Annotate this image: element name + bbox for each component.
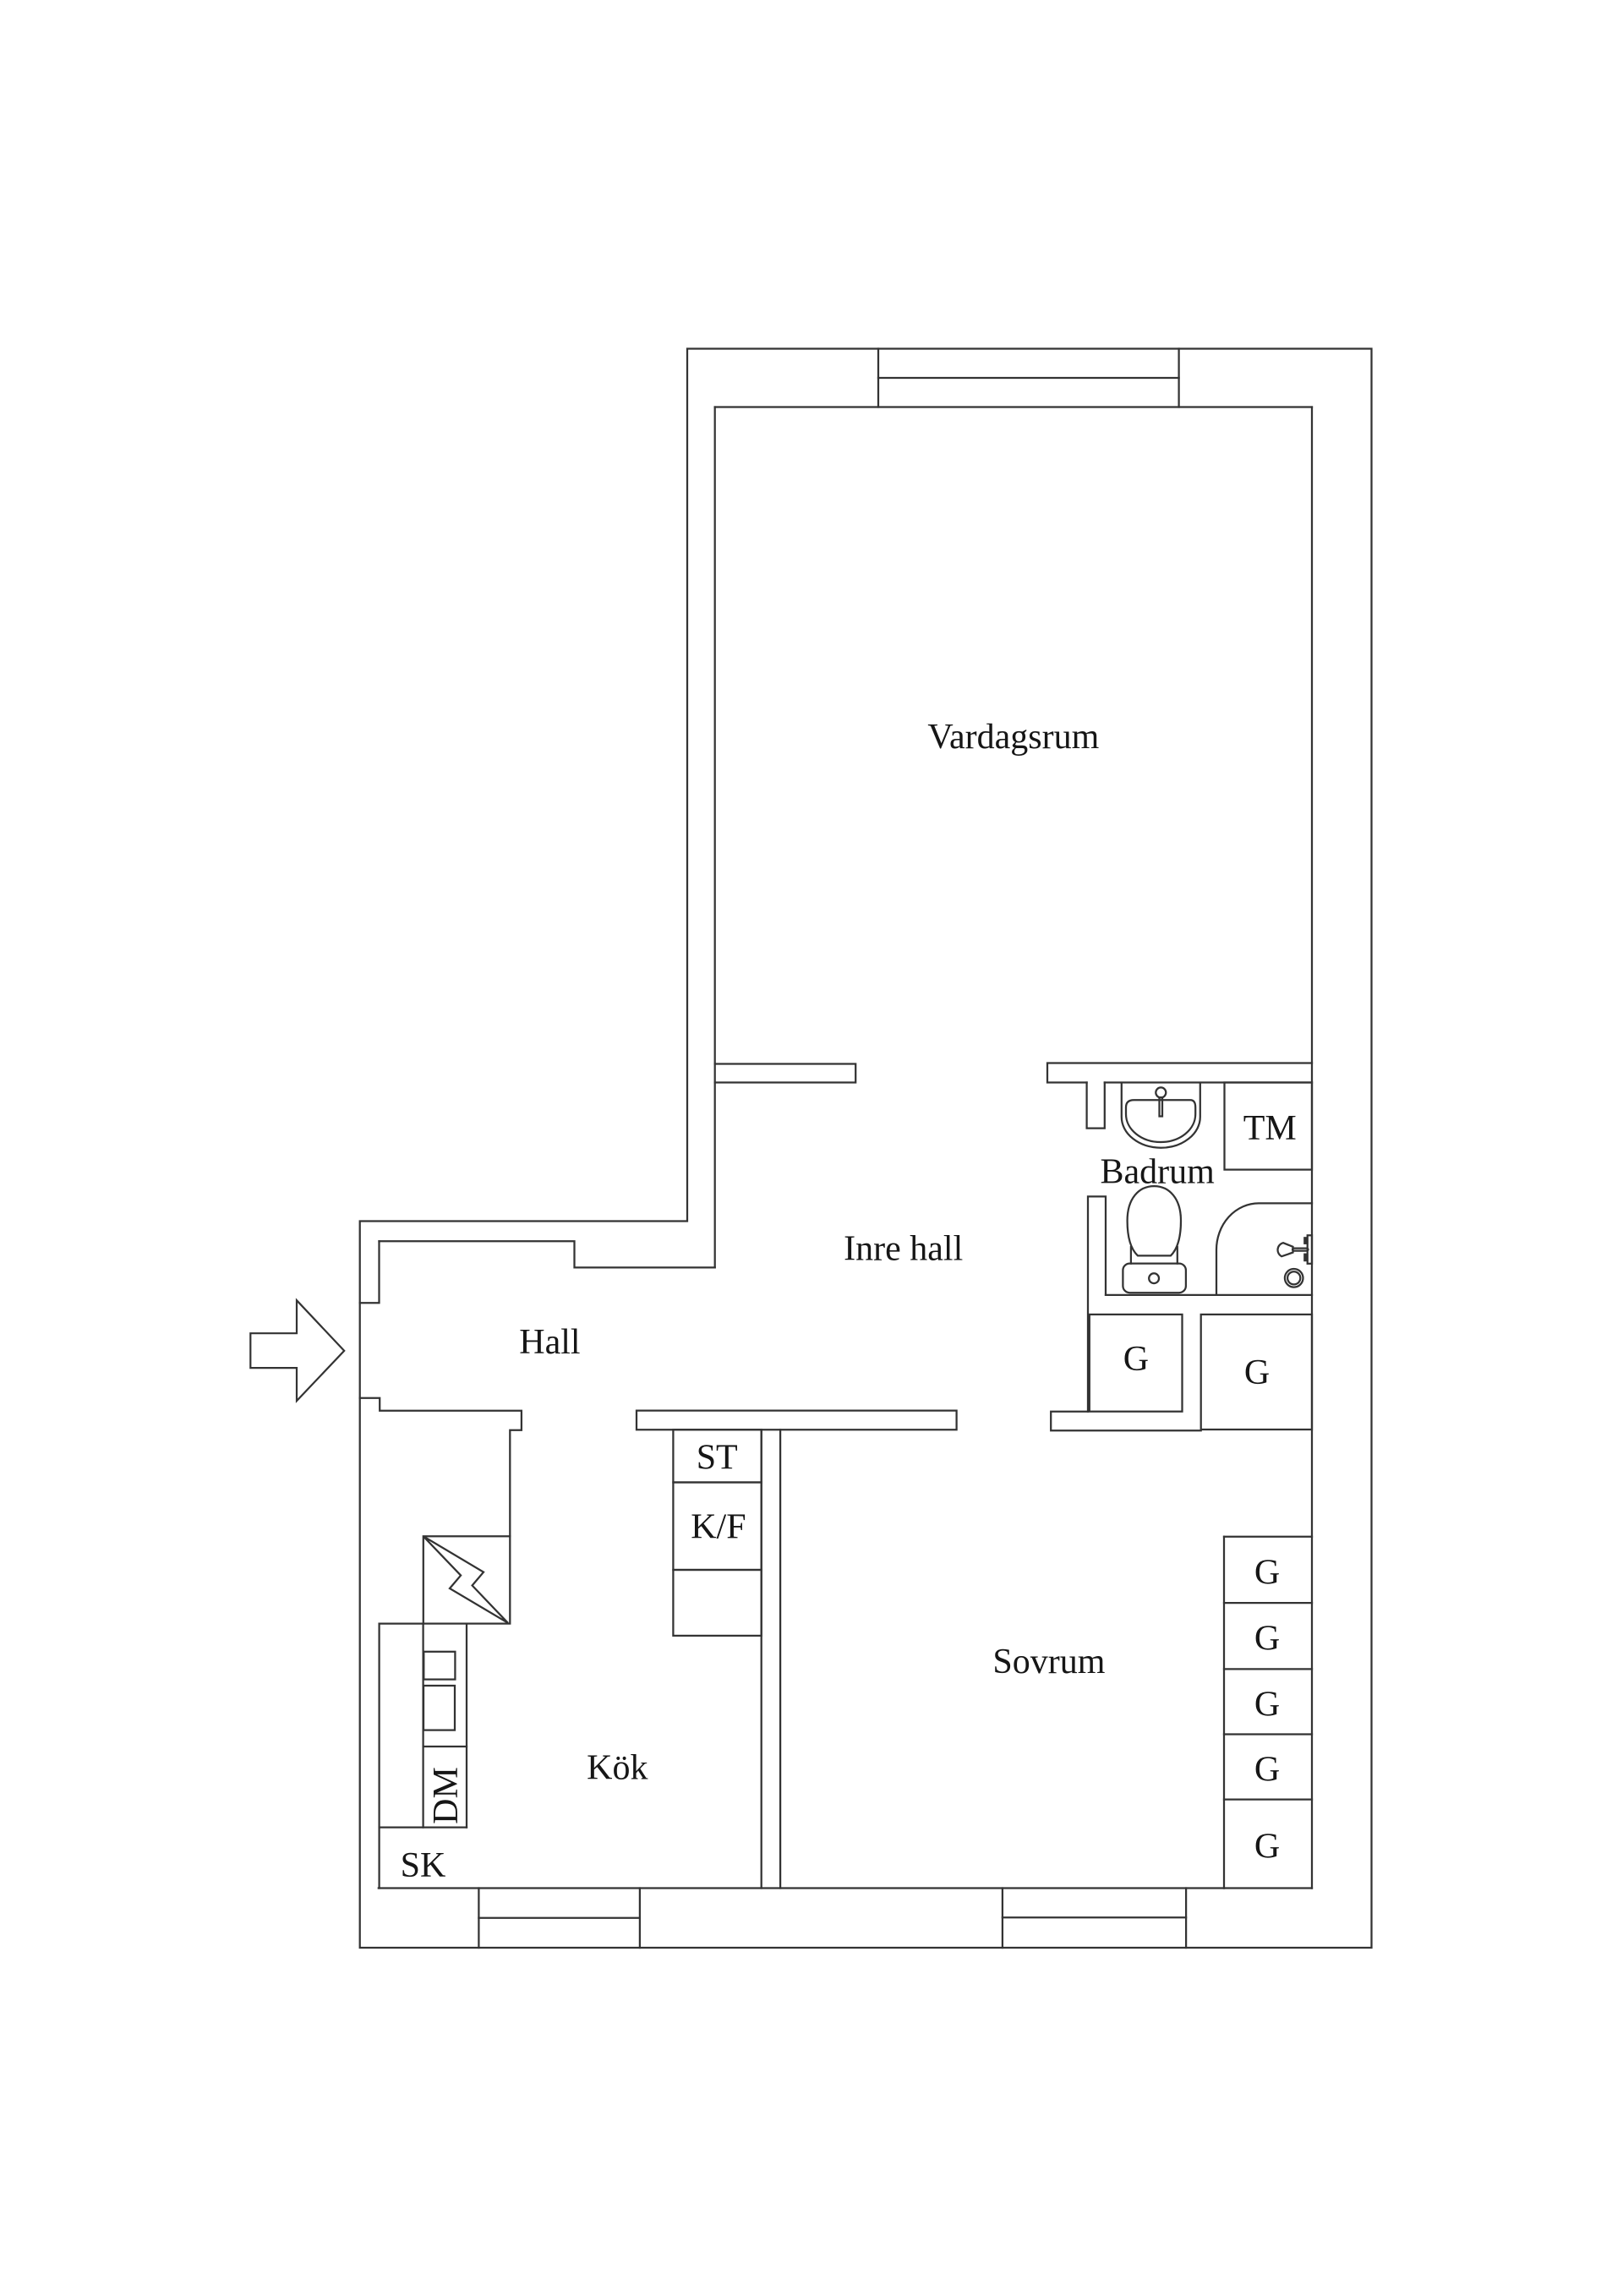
svg-text:G: G [1254,1828,1280,1867]
svg-text:G: G [1254,1751,1280,1790]
svg-text:K/F: K/F [691,1508,746,1547]
svg-text:TM: TM [1243,1109,1297,1148]
svg-text:Hall: Hall [519,1323,580,1362]
svg-text:G: G [1244,1353,1270,1392]
svg-text:Sovrum: Sovrum [992,1643,1105,1681]
svg-text:DM: DM [427,1767,466,1824]
svg-text:Kök: Kök [587,1748,648,1787]
svg-text:G: G [1123,1340,1149,1379]
svg-text:Badrum: Badrum [1100,1153,1215,1192]
svg-text:G: G [1254,1620,1280,1659]
svg-text:G: G [1254,1553,1280,1592]
svg-text:G: G [1254,1685,1280,1724]
svg-text:ST: ST [697,1439,738,1478]
svg-text:SK: SK [401,1846,446,1885]
svg-text:Vardagsrum: Vardagsrum [927,718,1099,757]
svg-text:Inre hall: Inre hall [844,1230,963,1269]
